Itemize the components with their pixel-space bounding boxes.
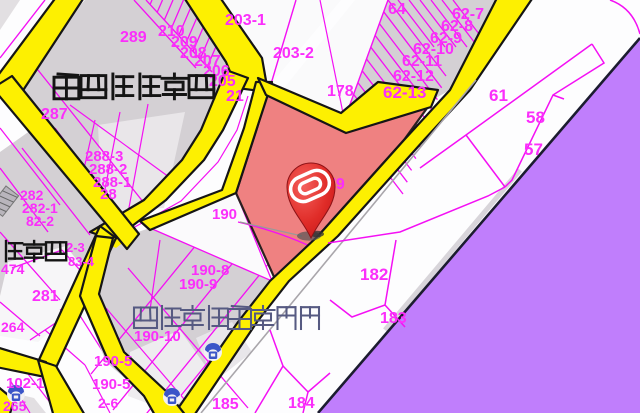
svg-text:182: 182 [360,265,388,284]
svg-text:185: 185 [212,396,239,413]
svg-text:289: 289 [120,29,147,46]
svg-text:21: 21 [226,88,244,105]
svg-text:265: 265 [3,398,27,413]
svg-text:287: 287 [41,106,68,123]
svg-text:2-3: 2-3 [66,240,85,255]
svg-text:82-2: 82-2 [26,213,54,229]
svg-text:61: 61 [489,86,508,105]
svg-text:28: 28 [100,186,117,203]
svg-text:203-1: 203-1 [225,12,266,29]
svg-text:58: 58 [526,108,545,127]
svg-text:184: 184 [288,395,315,412]
svg-text:190-5: 190-5 [94,353,132,370]
svg-text:2-6: 2-6 [98,395,118,411]
svg-text:62-13: 62-13 [383,83,426,102]
svg-text:190-10: 190-10 [134,328,181,345]
svg-text:83-4: 83-4 [68,254,95,269]
svg-text:64: 64 [388,1,406,18]
svg-text:183: 183 [380,310,407,327]
svg-text:203-2: 203-2 [273,45,314,62]
svg-text:178: 178 [327,83,354,100]
svg-text:190-5: 190-5 [92,376,130,393]
svg-text:102-1: 102-1 [6,375,44,392]
svg-text:190: 190 [212,206,237,223]
svg-text:190-9: 190-9 [179,276,217,293]
svg-text:474: 474 [1,261,25,277]
svg-text:281: 281 [32,288,59,305]
svg-text:57: 57 [524,140,543,159]
svg-text:264: 264 [1,319,25,335]
